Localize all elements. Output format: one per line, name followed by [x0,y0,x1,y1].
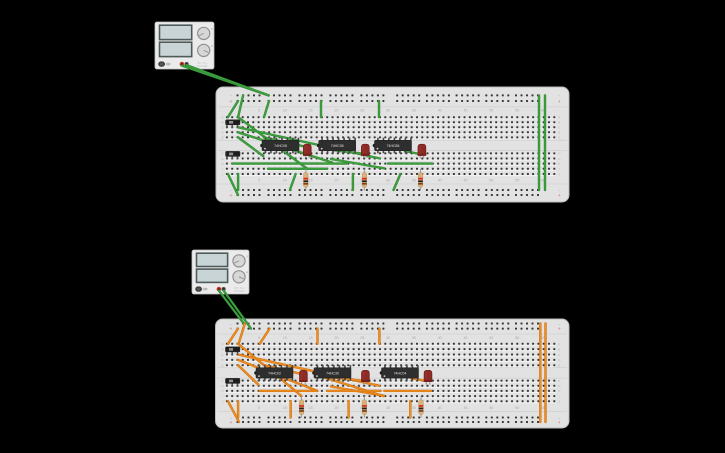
svg-text:55: 55 [515,406,519,410]
svg-text:35: 35 [412,109,416,113]
svg-text:50: 50 [489,109,493,113]
svg-text:10: 10 [283,336,287,340]
svg-text:E: E [558,136,560,140]
svg-text:E: E [558,364,560,368]
svg-text:55: 55 [515,336,519,340]
svg-text:/: / [244,287,245,291]
svg-text:F: F [558,379,560,383]
svg-text:5: 5 [258,406,260,410]
svg-text:55: 55 [515,179,519,183]
svg-text:35: 35 [412,179,416,183]
svg-text:B: B [558,347,560,351]
svg-text:45: 45 [464,179,468,183]
svg-text:74HC04: 74HC04 [394,371,407,375]
svg-text:+: + [230,193,233,199]
svg-text:5: 5 [258,336,260,340]
svg-text:OFF: OFF [203,288,208,291]
svg-text:A: A [211,44,213,48]
svg-text:30: 30 [386,336,390,340]
svg-text:15: 15 [309,336,313,340]
svg-text:55: 55 [515,109,519,113]
svg-text:+: + [230,420,233,426]
svg-text:25: 25 [360,109,364,113]
svg-text:I: I [222,394,223,398]
svg-text:35: 35 [412,336,416,340]
svg-text:I: I [222,167,223,171]
svg-text:74HC08: 74HC08 [331,144,344,148]
svg-text:H: H [221,389,223,393]
svg-text:20: 20 [335,406,339,410]
svg-text:A: A [246,270,248,274]
svg-text:20: 20 [335,109,339,113]
svg-text:50: 50 [489,179,493,183]
svg-text:30: 30 [386,109,390,113]
svg-text:30: 30 [386,179,390,183]
svg-text:10: 10 [283,406,287,410]
svg-text:45: 45 [464,406,468,410]
svg-text:B: B [558,121,560,125]
svg-text:15: 15 [309,406,313,410]
svg-text:15: 15 [309,109,313,113]
svg-text:I: I [559,394,560,398]
svg-text:5: 5 [258,109,260,113]
svg-text:35: 35 [412,406,416,410]
svg-text:40: 40 [438,109,442,113]
svg-text:V: V [246,254,248,258]
svg-text:74HC30: 74HC30 [326,371,339,375]
svg-text:+: + [558,420,561,426]
svg-text:10: 10 [283,179,287,183]
svg-text:40: 40 [438,179,442,183]
svg-text:40: 40 [438,336,442,340]
svg-text:20: 20 [335,336,339,340]
svg-text:5: 5 [258,179,260,183]
svg-text:F: F [222,379,224,383]
svg-text:H: H [558,389,560,393]
svg-text:50: 50 [489,336,493,340]
svg-text:30: 30 [386,406,390,410]
svg-text:45: 45 [464,109,468,113]
svg-text:25: 25 [360,336,364,340]
svg-text:/: / [207,62,208,66]
svg-text:E: E [221,136,223,140]
svg-text:15: 15 [309,179,313,183]
svg-text:V: V [211,27,213,31]
svg-text:F: F [558,152,560,156]
svg-text:B: B [221,121,223,125]
svg-text:B: B [221,347,223,351]
svg-text:50: 50 [489,406,493,410]
svg-text:40: 40 [438,406,442,410]
svg-text:OFF: OFF [166,63,171,66]
svg-text:H: H [558,162,560,166]
svg-text:H: H [221,162,223,166]
svg-text:+: + [558,193,561,199]
svg-text:+: + [558,99,561,105]
svg-text:10: 10 [283,109,287,113]
svg-text:+: + [230,99,233,105]
svg-text:74HC08: 74HC08 [274,144,287,148]
svg-text:+: + [230,327,233,333]
svg-text:E: E [221,364,223,368]
svg-text:74HC02: 74HC02 [268,371,281,375]
svg-text:I: I [559,167,560,171]
svg-text:45: 45 [464,336,468,340]
svg-text:F: F [222,152,224,156]
svg-text:20: 20 [335,179,339,183]
svg-text:+: + [558,327,561,333]
svg-text:74HC86: 74HC86 [387,144,400,148]
